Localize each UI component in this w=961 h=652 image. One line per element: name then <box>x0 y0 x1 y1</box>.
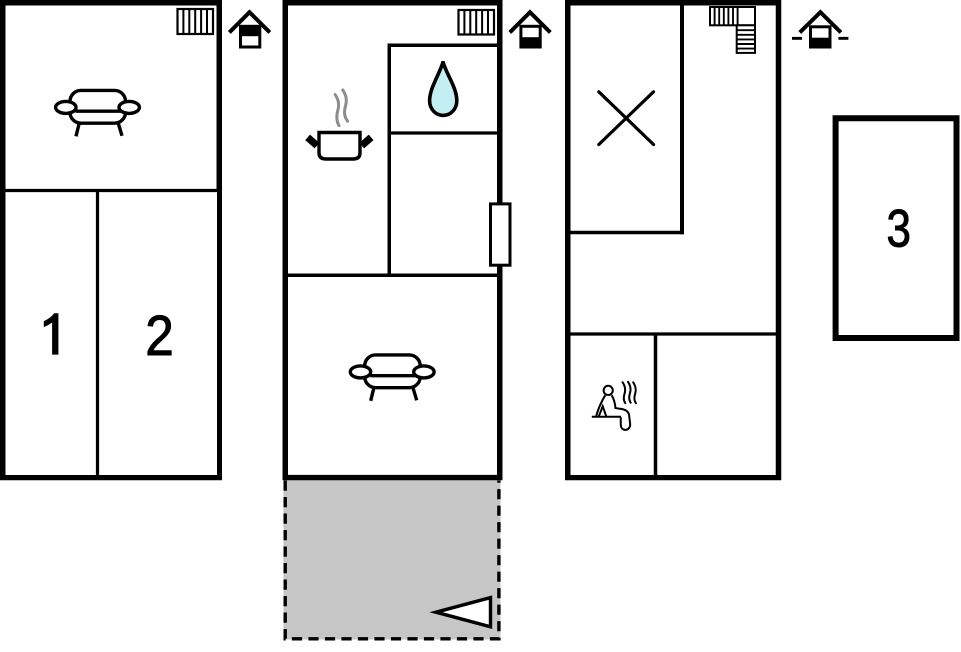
svg-text:3: 3 <box>886 200 910 259</box>
svg-text:2: 2 <box>145 304 174 367</box>
